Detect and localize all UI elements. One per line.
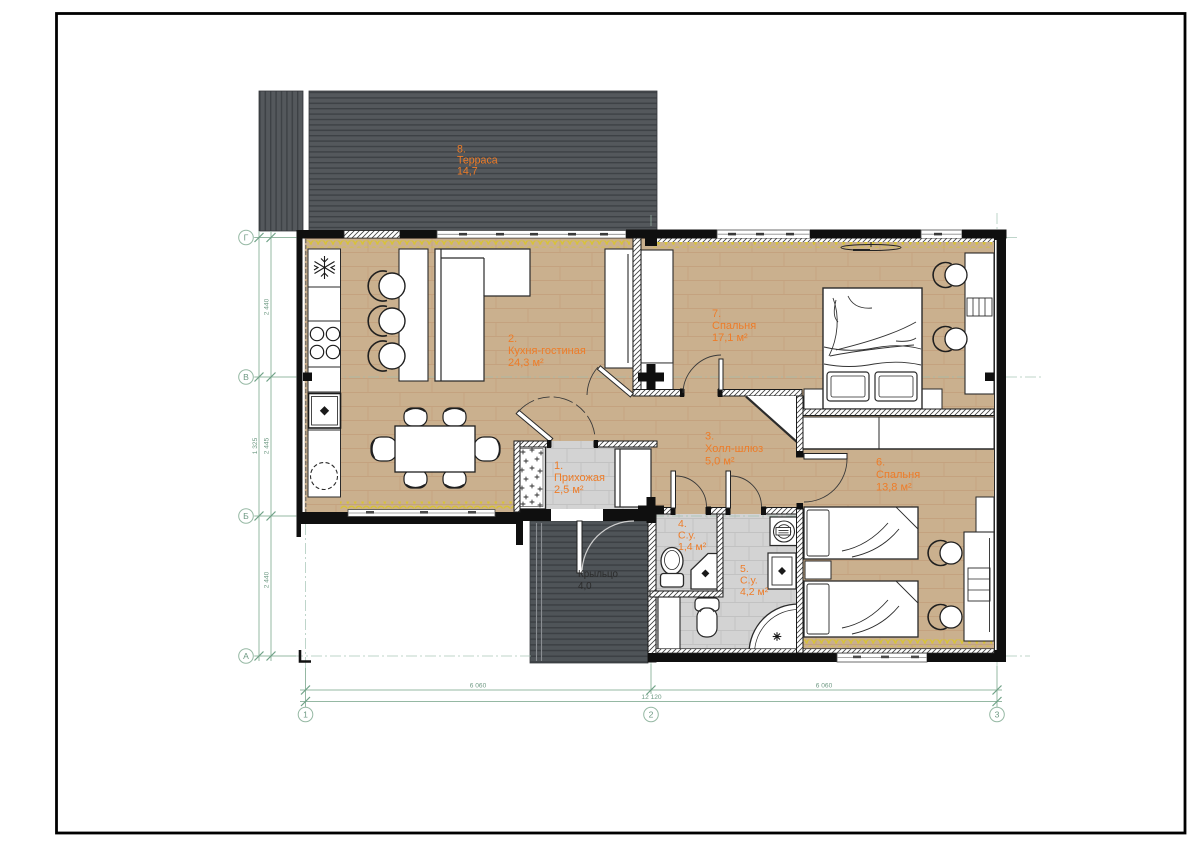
svg-text:Спальня: Спальня [876, 469, 920, 481]
svg-text:Холл-шлюз: Холл-шлюз [705, 443, 763, 455]
svg-text:4,0: 4,0 [578, 581, 592, 592]
svg-text:1: 1 [303, 710, 308, 720]
svg-text:5.: 5. [740, 563, 749, 575]
svg-text:13,8 м²: 13,8 м² [876, 482, 912, 494]
svg-text:4,2 м²: 4,2 м² [740, 586, 769, 598]
svg-text:5,0 м²: 5,0 м² [705, 456, 735, 468]
svg-text:Кухня-гостиная: Кухня-гостиная [508, 345, 586, 357]
svg-text:17,1 м²: 17,1 м² [712, 332, 748, 344]
svg-text:В: В [243, 372, 249, 382]
svg-text:Крыльцо: Крыльцо [578, 569, 619, 580]
svg-text:6.: 6. [876, 457, 885, 469]
svg-text:4.: 4. [678, 518, 687, 530]
svg-text:6 060: 6 060 [470, 683, 487, 690]
svg-text:24,3 м²: 24,3 м² [508, 357, 544, 369]
svg-text:1 325: 1 325 [252, 437, 259, 454]
svg-text:А: А [243, 651, 249, 661]
svg-text:С.у.: С.у. [740, 575, 758, 587]
svg-text:3: 3 [995, 710, 1000, 720]
svg-text:2 445: 2 445 [264, 437, 271, 454]
svg-text:Г: Г [244, 233, 249, 243]
svg-text:Б: Б [243, 511, 249, 521]
svg-text:2,5 м²: 2,5 м² [554, 484, 584, 496]
svg-text:1.: 1. [554, 460, 563, 472]
svg-text:14,7: 14,7 [457, 166, 478, 178]
svg-text:12 120: 12 120 [641, 694, 662, 701]
svg-text:7.: 7. [712, 308, 721, 320]
svg-text:2: 2 [649, 710, 654, 720]
svg-text:С.у.: С.у. [678, 530, 696, 542]
svg-text:Прихожая: Прихожая [554, 472, 605, 484]
svg-text:3.: 3. [705, 431, 714, 443]
svg-text:1,4 м²: 1,4 м² [678, 541, 707, 553]
svg-text:2.: 2. [508, 333, 517, 345]
svg-text:2 440: 2 440 [264, 298, 271, 315]
svg-text:Спальня: Спальня [712, 320, 756, 332]
svg-text:2 440: 2 440 [264, 571, 271, 588]
svg-text:6 060: 6 060 [816, 683, 833, 690]
